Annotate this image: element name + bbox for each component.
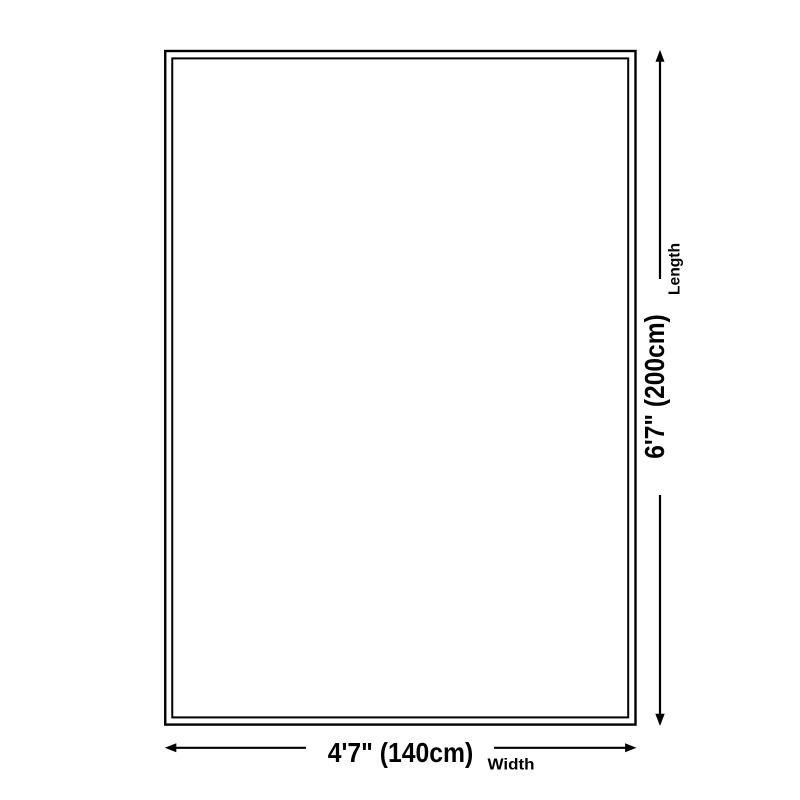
svg-text:Length: Length bbox=[667, 243, 684, 295]
svg-text:4'7" (140cm): 4'7" (140cm) bbox=[328, 737, 474, 768]
svg-text:Width: Width bbox=[488, 757, 535, 774]
svg-text:6'7" (200cm): 6'7" (200cm) bbox=[639, 314, 670, 459]
